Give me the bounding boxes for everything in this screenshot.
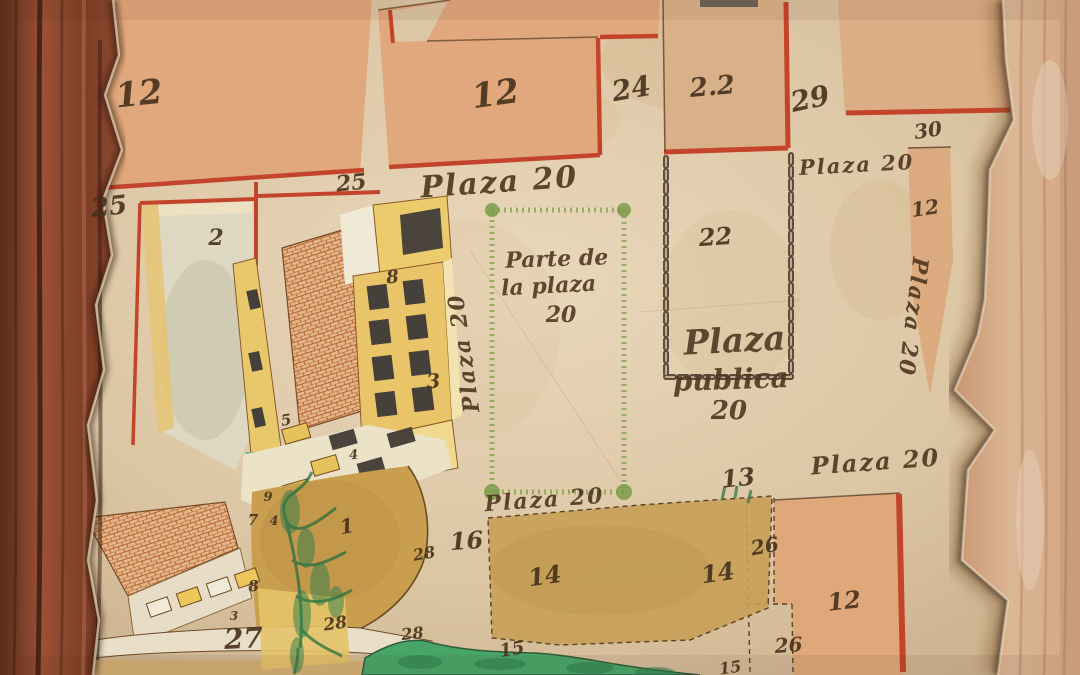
parcel-number: 25 bbox=[334, 169, 368, 198]
parcel-number: 13 bbox=[720, 461, 756, 493]
parcel-number: 3 bbox=[425, 368, 441, 393]
parcel-number: 27 bbox=[222, 621, 264, 656]
parcel-number: 25 bbox=[89, 190, 129, 224]
parcel-number: 30 bbox=[913, 116, 944, 144]
parcel-number: 4 bbox=[269, 514, 278, 529]
screenshot-stage: Plaza 20Plaza 20Plaza 20Plaza 20Plaza 20… bbox=[0, 0, 1080, 675]
map-note: 20 bbox=[545, 302, 577, 328]
map-note: publica bbox=[672, 361, 789, 398]
parcel-number: 26 bbox=[748, 532, 781, 561]
parcel-number: 14 bbox=[699, 556, 736, 589]
parcel-number: 4 bbox=[349, 448, 359, 464]
map-note: la plaza bbox=[501, 271, 597, 302]
parcel-number: 7 bbox=[248, 511, 259, 529]
parcel-number: 12 bbox=[113, 72, 164, 117]
parcel-number: 8 bbox=[384, 266, 400, 288]
parcel-number: 22 bbox=[697, 221, 733, 252]
parcel-number: 15 bbox=[498, 637, 526, 662]
map-note: 20 bbox=[710, 396, 747, 426]
map-note: Plaza bbox=[682, 318, 787, 363]
parcel-number: 14 bbox=[526, 559, 563, 592]
parcel-number: 3 bbox=[230, 609, 238, 623]
parcel-number: 26 bbox=[773, 632, 804, 658]
parcel-number: 15 bbox=[718, 657, 743, 675]
parcel-number: 24 bbox=[608, 69, 653, 108]
parcel-number: 12 bbox=[826, 584, 862, 616]
parcel-number: 2 bbox=[207, 225, 223, 251]
parcel-number: 28 bbox=[410, 542, 436, 565]
historic-plat-map: Plaza 20Plaza 20Plaza 20Plaza 20Plaza 20… bbox=[0, 0, 1080, 675]
parcel-number: 28 bbox=[399, 623, 424, 644]
parcel-number: 12 bbox=[469, 71, 521, 117]
parcel-number: 16 bbox=[449, 525, 485, 556]
parcel-number: 12 bbox=[910, 194, 941, 222]
parcel-number: 28 bbox=[321, 612, 348, 635]
parcel-number: 2.2 bbox=[687, 70, 736, 104]
parcel-number: 9 bbox=[263, 490, 272, 505]
map-note: Parte de bbox=[504, 244, 609, 274]
